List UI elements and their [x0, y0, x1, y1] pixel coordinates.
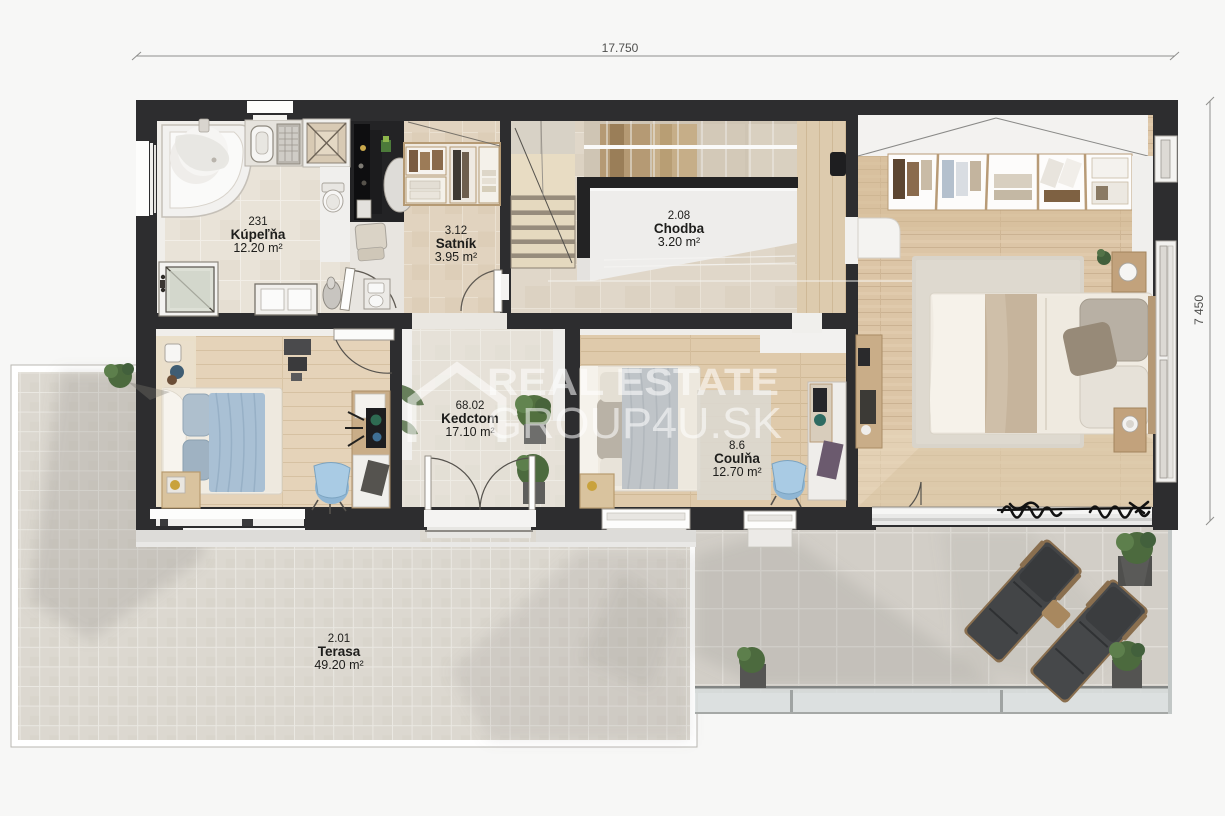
svg-text:3.20 m²: 3.20 m²: [658, 235, 700, 249]
svg-text:Coulňa: Coulňa: [714, 451, 760, 466]
svg-text:12.20 m²: 12.20 m²: [233, 241, 282, 255]
svg-text:7 450: 7 450: [1192, 295, 1206, 325]
svg-text:17.750: 17.750: [602, 41, 639, 55]
svg-text:Satník: Satník: [436, 236, 477, 251]
svg-text:Chodba: Chodba: [654, 221, 705, 236]
svg-text:49.20 m²: 49.20 m²: [314, 658, 363, 672]
svg-text:GROUP4U.SK: GROUP4U.SK: [487, 399, 782, 448]
svg-text:Kúpeľňa: Kúpeľňa: [231, 227, 286, 242]
svg-text:12.70 m²: 12.70 m²: [712, 465, 761, 479]
svg-text:3.95 m²: 3.95 m²: [435, 250, 477, 264]
svg-text:REAL ESTATE: REAL ESTATE: [487, 362, 779, 404]
svg-text:Terasa: Terasa: [318, 644, 361, 659]
